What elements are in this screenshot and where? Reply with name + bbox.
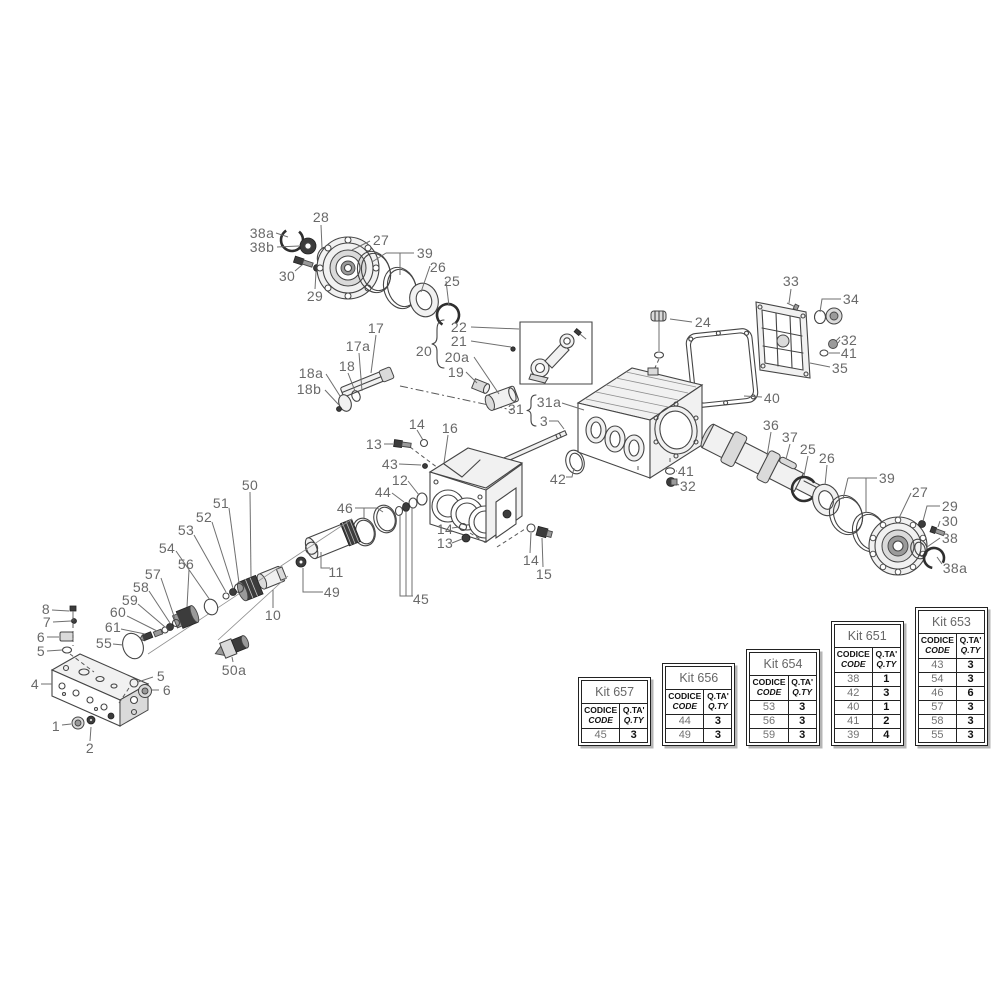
kit-title: Kit 651 [835, 625, 900, 648]
kit-code-cell: 44 [666, 715, 704, 728]
kit-code-cell: 58 [919, 715, 957, 728]
kit-row: 394 [835, 729, 900, 742]
part-label-5: 5 [37, 644, 45, 658]
code-column-header: CODICECODE [919, 634, 957, 658]
part-label-25: 25 [444, 274, 460, 288]
kit-code-cell: 38 [835, 673, 873, 686]
kit-code-cell: 45 [582, 729, 620, 742]
part-label-22: 22 [451, 320, 467, 334]
kit-header-row: CODICECODEQ.TA'Q.TY [582, 704, 647, 729]
kit-title: Kit 653 [919, 611, 984, 634]
code-column-header: CODICECODE [750, 676, 788, 700]
code-column-header: CODICECODE [835, 648, 873, 672]
part-label-53: 53 [178, 523, 194, 537]
part-label-38a: 38a [250, 226, 275, 240]
part-label-21: 21 [451, 334, 467, 348]
kit-header-row: CODICECODEQ.TA'Q.TY [666, 690, 731, 715]
kit-row: 466 [919, 687, 984, 701]
kit-title: Kit 656 [666, 667, 731, 690]
kit-table-kit-651: Kit 651CODICECODEQ.TA'Q.TY38142340141239… [831, 621, 904, 746]
diagram-line-art [0, 0, 1000, 1000]
rear-cover-35 [756, 302, 810, 378]
kit-qty-cell: 3 [957, 659, 984, 672]
kit-row: 543 [919, 673, 984, 687]
part-label-18b: 18b [297, 382, 322, 396]
part-label-31a: 31a [537, 395, 562, 409]
kit-code-cell: 54 [919, 673, 957, 686]
part-label-34: 34 [843, 292, 859, 306]
kit-table-kit-656: Kit 656CODICECODEQ.TA'Q.TY443493 [662, 663, 735, 746]
bearing-flange-27 [869, 517, 927, 575]
part-label-42: 42 [550, 472, 566, 486]
part-label-26: 26 [819, 451, 835, 465]
exploded-parts-diagram: 38a38b282730293926251717a1818a18b2022212… [0, 0, 1000, 1000]
kit-code-cell: 43 [919, 659, 957, 672]
part-label-14: 14 [437, 522, 453, 536]
part-label-3: 3 [540, 414, 548, 428]
kit-qty-cell: 3 [704, 729, 731, 742]
kit-code-cell: 39 [835, 729, 873, 742]
kit-tables: Kit 657CODICECODEQ.TA'Q.TY453Kit 656CODI… [578, 606, 988, 746]
kit-qty-cell: 3 [957, 729, 984, 742]
kit-code-cell: 53 [750, 701, 788, 714]
kit-table-kit-654: Kit 654CODICECODEQ.TA'Q.TY533563593 [746, 649, 819, 746]
part-label-17a: 17a [346, 339, 371, 353]
kit-table-kit-657: Kit 657CODICECODEQ.TA'Q.TY453 [578, 677, 651, 746]
kit-row: 583 [919, 715, 984, 729]
part-label-7: 7 [43, 615, 51, 629]
kit-header-row: CODICECODEQ.TA'Q.TY [750, 676, 815, 701]
kit-code-cell: 49 [666, 729, 704, 742]
kit-table-kit-653: Kit 653CODICECODEQ.TA'Q.TY43354346657358… [915, 607, 988, 746]
part-label-27: 27 [912, 485, 928, 499]
part-label-39: 39 [417, 246, 433, 260]
qty-column-header: Q.TA'Q.TY [789, 676, 816, 700]
part-label-54: 54 [159, 541, 175, 555]
part-label-45: 45 [413, 592, 429, 606]
kit-qty-cell: 3 [704, 715, 731, 728]
part-label-41: 41 [841, 346, 857, 360]
kit-code-cell: 59 [750, 729, 788, 742]
part-label-38a: 38a [943, 561, 968, 575]
code-column-header: CODICECODE [666, 690, 704, 714]
kit-code-cell: 40 [835, 701, 873, 714]
kit-row: 573 [919, 701, 984, 715]
part-label-43: 43 [382, 457, 398, 471]
kit-row: 433 [919, 659, 984, 673]
kit-row: 443 [666, 715, 731, 729]
part-label-33: 33 [783, 274, 799, 288]
part-label-55: 55 [96, 636, 112, 650]
kit-qty-cell: 3 [620, 729, 647, 742]
kit-code-cell: 41 [835, 715, 873, 728]
kit-qty-cell: 3 [789, 701, 816, 714]
part-label-50: 50 [242, 478, 258, 492]
part-label-60: 60 [110, 605, 126, 619]
kit-qty-cell: 3 [789, 715, 816, 728]
part-label-29: 29 [942, 499, 958, 513]
part-label-52: 52 [196, 510, 212, 524]
part-label-14: 14 [409, 417, 425, 431]
kit-row: 533 [750, 701, 815, 715]
kit-code-cell: 42 [835, 687, 873, 700]
part-label-1: 1 [52, 719, 60, 733]
part-label-12: 12 [392, 473, 408, 487]
kit-qty-cell: 3 [957, 701, 984, 714]
kit-header-row: CODICECODEQ.TA'Q.TY [919, 634, 984, 659]
part-label-19: 19 [448, 365, 464, 379]
part-label-29: 29 [307, 289, 323, 303]
part-label-44: 44 [375, 485, 391, 499]
part-label-11: 11 [328, 565, 343, 579]
kit-header-row: CODICECODEQ.TA'Q.TY [835, 648, 900, 673]
part-label-15: 15 [536, 567, 552, 581]
part-label-20: 20 [416, 344, 432, 358]
part-label-27: 27 [373, 233, 389, 247]
part-label-36: 36 [763, 418, 779, 432]
part-label-13: 13 [366, 437, 382, 451]
kit-qty-cell: 3 [957, 673, 984, 686]
part-label-18: 18 [339, 359, 355, 373]
part-label-30: 30 [942, 514, 958, 528]
part-label-18a: 18a [299, 366, 324, 380]
kit-qty-cell: 3 [957, 715, 984, 728]
kit-code-cell: 57 [919, 701, 957, 714]
part-label-26: 26 [430, 260, 446, 274]
qty-column-header: Q.TA'Q.TY [704, 690, 731, 714]
kit-row: 453 [582, 729, 647, 742]
part-label-25: 25 [800, 442, 816, 456]
part-label-39: 39 [879, 471, 895, 485]
part-label-61: 61 [105, 620, 121, 634]
part-label-4: 4 [31, 677, 39, 691]
part-label-38b: 38b [250, 240, 275, 254]
part-label-46: 46 [337, 501, 353, 515]
kit-row: 593 [750, 729, 815, 742]
part-label-56: 56 [178, 557, 194, 571]
part-label-40: 40 [764, 391, 780, 405]
part-label-35: 35 [832, 361, 848, 375]
part-label-37: 37 [782, 430, 798, 444]
kit-code-cell: 55 [919, 729, 957, 742]
kit-qty-cell: 6 [957, 687, 984, 700]
part-label-14: 14 [523, 553, 539, 567]
kit-title: Kit 654 [750, 653, 815, 676]
kit-row: 493 [666, 729, 731, 742]
kit-code-cell: 56 [750, 715, 788, 728]
part-label-13: 13 [437, 536, 453, 550]
part-label-28: 28 [313, 210, 329, 224]
part-label-17: 17 [368, 321, 384, 335]
part-label-16: 16 [442, 421, 458, 435]
kit-title: Kit 657 [582, 681, 647, 704]
kit-row: 401 [835, 701, 900, 715]
kit-qty-cell: 1 [873, 673, 900, 686]
qty-column-header: Q.TA'Q.TY [957, 634, 984, 658]
kit-code-cell: 46 [919, 687, 957, 700]
part-label-38: 38 [942, 531, 958, 545]
part-label-32: 32 [680, 479, 696, 493]
part-label-31: 31 [508, 402, 524, 416]
kit-qty-cell: 1 [873, 701, 900, 714]
kit-row: 412 [835, 715, 900, 729]
part-label-50a: 50a [222, 663, 247, 677]
code-column-header: CODICECODE [582, 704, 620, 728]
kit-row: 381 [835, 673, 900, 687]
qty-column-header: Q.TA'Q.TY [873, 648, 900, 672]
kit-qty-cell: 3 [789, 729, 816, 742]
kit-qty-cell: 3 [873, 687, 900, 700]
part-label-6: 6 [163, 683, 171, 697]
part-label-49: 49 [324, 585, 340, 599]
kit-qty-cell: 4 [873, 729, 900, 742]
part-label-5: 5 [157, 669, 165, 683]
part-label-6: 6 [37, 630, 45, 644]
kit-row: 423 [835, 687, 900, 701]
part-label-20a: 20a [445, 350, 470, 364]
part-label-10: 10 [265, 608, 281, 622]
part-label-41: 41 [678, 464, 694, 478]
kit-row: 563 [750, 715, 815, 729]
part-label-30: 30 [279, 269, 295, 283]
qty-column-header: Q.TA'Q.TY [620, 704, 647, 728]
kit-row: 553 [919, 729, 984, 742]
kit-qty-cell: 2 [873, 715, 900, 728]
part-label-2: 2 [86, 741, 94, 755]
part-label-24: 24 [695, 315, 711, 329]
part-label-51: 51 [213, 496, 229, 510]
